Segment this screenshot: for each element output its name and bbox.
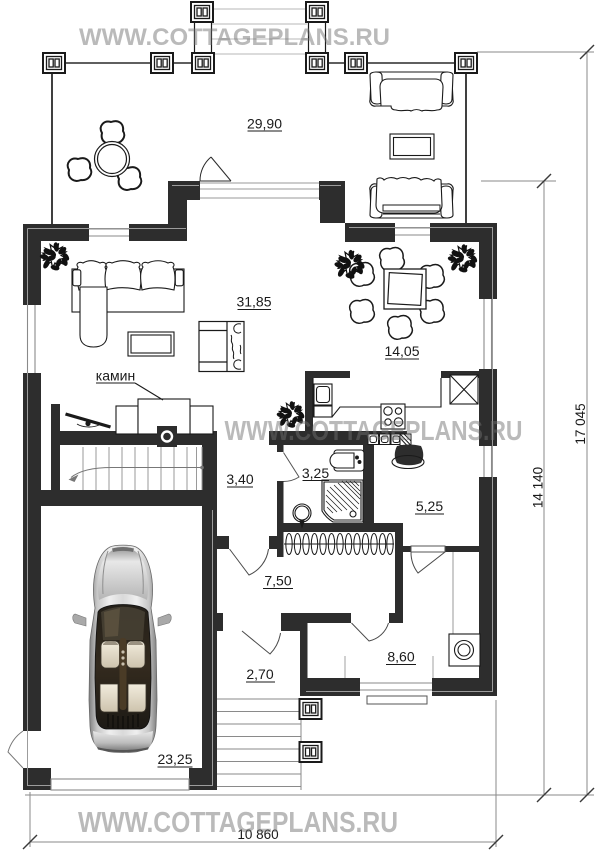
svg-text:23,25: 23,25	[157, 751, 192, 767]
svg-text:17 045: 17 045	[573, 403, 588, 444]
svg-text:14,05: 14,05	[384, 343, 419, 359]
svg-text:5,25: 5,25	[416, 498, 443, 514]
svg-text:3,25: 3,25	[302, 465, 329, 481]
svg-text:WWW.COTTAGEPLANS.RU: WWW.COTTAGEPLANS.RU	[78, 807, 398, 839]
svg-text:8,60: 8,60	[387, 649, 414, 665]
svg-text:камин: камин	[96, 368, 135, 384]
svg-text:29,90: 29,90	[247, 116, 282, 132]
svg-text:31,85: 31,85	[236, 294, 271, 310]
svg-text:WWW.COTTAGEPLANS.RU: WWW.COTTAGEPLANS.RU	[79, 24, 390, 51]
svg-text:3,40: 3,40	[226, 471, 253, 487]
svg-text:WWW.COTTAGEPLANS.RU: WWW.COTTAGEPLANS.RU	[225, 415, 523, 446]
svg-text:7,50: 7,50	[264, 573, 291, 589]
svg-text:2,70: 2,70	[246, 666, 273, 682]
svg-text:14 140: 14 140	[531, 467, 546, 508]
